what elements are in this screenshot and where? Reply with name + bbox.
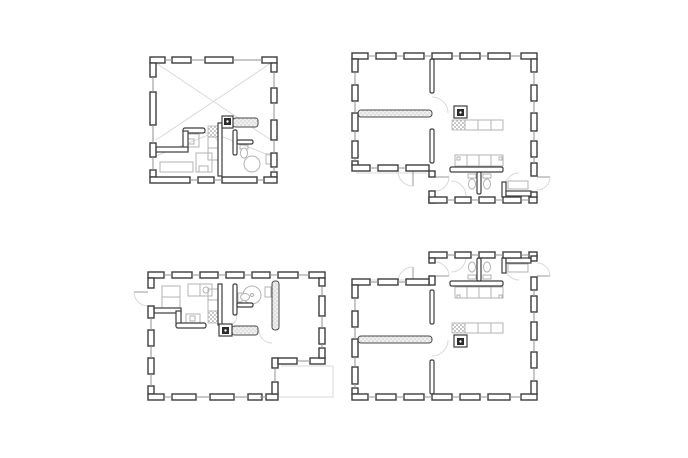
floor-plan-lower-right-fix [483,275,491,279]
floor-plan-lower-right-fix [465,323,478,333]
floor-plan-upper-right-wall [488,53,510,59]
floor-plan-lower-right-dot [459,340,461,342]
floor-plan-lower-left-wall [278,358,297,364]
floor-plan-upper-right-dot [459,111,461,113]
floor-plan-lower-left-faint [259,330,272,343]
floor-plan-upper-left-fixf [241,148,248,158]
floor-plan-lower-left-fix [188,284,200,296]
floor-plan-lower-right-wall [404,394,424,400]
floor-plan-lower-right-wall [352,279,370,285]
floor-plan-lower-left-wall [278,272,298,278]
floor-plan-upper-left-wall [271,120,277,140]
floor-plan-lower-right-wall [352,394,368,400]
floor-plan-upper-right-tex [358,110,432,117]
floor-plan-lower-right-wall [488,394,510,400]
floor-plan-upper-right-wall [352,165,370,171]
floor-plan-lower-left-wall [148,386,154,394]
floor-plan-upper-right-wall [529,197,537,203]
floor-plan-lower-right-fix [508,264,528,272]
floor-plan-lower-right-wall [432,394,452,400]
floor-plan-upper-right-wall [531,59,537,72]
floor-plan-upper-left-wall [271,153,277,167]
floor-plan-upper-right-wall [429,197,447,203]
floor-plan-lower-right-wall [479,252,495,258]
floor-plan-upper-left-wall [271,63,277,72]
floor-plan-lower-left-faint [134,292,148,306]
floor-plan-upper-right-faint [451,181,466,196]
floor-plan-lower-right-wall [455,252,471,258]
floor-plan-upper-right-wall [503,197,521,203]
floor-plan-upper-right-wall [352,85,358,101]
floor-plan-upper-right-fixf [484,179,491,189]
floor-plan-lower-left-wall [319,278,325,286]
floor-plan-lower-left-fix [186,314,200,323]
floor-plan-upper-right-fix [467,155,479,166]
floor-plan-upper-right-part [430,59,434,93]
floor-plan-upper-right-wall [531,113,537,131]
floor-plan-lower-left-tex [232,326,258,335]
floor-plan-lower-left-fix [200,284,212,296]
floor-plan-upper-left-wall [150,63,156,77]
floor-plan-upper-right-wall [531,163,537,176]
floor-plan-upper-right-part [502,182,506,197]
floor-plan-upper-right-faint [537,177,550,190]
floor-plan-upper-left-dot [226,120,228,122]
floor-plan-lower-right-part [430,290,434,324]
floor-plan-lower-left-fix [208,289,218,300]
floor-plan-upper-left-wall [150,177,190,183]
floor-plan-lower-right-wall [378,279,398,285]
floor-plan-lower-right-fixf [469,262,476,272]
floor-plan-lower-left-fix [251,294,254,297]
floor-plan-upper-right-wall [479,197,495,203]
floor-plan-lower-left-part [218,284,222,325]
floor-plan-lower-left-wall [148,394,164,400]
floor-plan-upper-left-wall [271,172,277,177]
floor-plan-lower-left-dot [224,329,226,331]
floor-plan-upper-right-wall [352,59,358,72]
floor-plan-upper-left-wall [150,92,156,125]
floor-plan-upper-right-check [452,120,465,130]
floor-plan-upper-left-wall [264,177,277,183]
floor-plan-lower-right-wall [352,367,358,384]
floor-plan-upper-right-wall [432,53,452,59]
floor-plan-lower-right-wall [352,388,358,394]
floor-plan-lower-right-fixf [484,262,491,272]
floor-plan-lower-right-wall [429,276,435,285]
floor-plan-lower-left-fix [162,297,180,308]
floor-plan-lower-left [134,272,333,400]
floor-plan-lower-right-part [450,281,503,286]
floor-plan-lower-right-fix [491,287,503,298]
floor-plan-lower-right-wall [503,252,521,258]
floor-plan-upper-right-faint [435,177,449,191]
floor-plan-lower-left-wall [319,328,325,344]
floor-plan-lower-right-wall [531,296,537,312]
floor-plan-upper-left-tex [233,118,258,127]
floor-plan-upper-left-wall [262,57,277,63]
floor-plan-lower-right-part [502,258,506,273]
floor-plan-upper-right-part [430,129,434,163]
floor-plan-upper-left-fix [208,148,218,160]
floor-plan-upper-right-part [506,191,531,196]
floor-plan-lower-right-fix [499,295,502,298]
floor-plan-lower-left-faint [278,366,333,397]
floor-plan-lower-left-fix [208,300,218,311]
floor-plan-upper-left-wall [205,57,233,63]
floor-plans-drawing [0,0,688,458]
floor-plan-lower-right-wall [352,311,358,327]
floor-plan-upper-left-wall [150,143,156,157]
floor-plan-upper-left-wall [222,177,257,183]
floor-plan-upper-left-part [183,131,188,149]
floor-plan-lower-left-part [237,303,253,307]
floor-plan-upper-left-wall [198,177,214,183]
floor-plan-lower-left-wall [148,330,154,346]
floor-plan-lower-right-wall [406,279,429,285]
floor-plan-upper-right-wall [378,165,398,171]
floor-plan-upper-left [150,57,277,183]
floor-plan-upper-right-wall [429,171,435,177]
floor-plan-upper-left-check [208,126,218,137]
floor-plan-lower-left-wall [200,272,218,278]
floor-plan-lower-right-part [506,258,531,263]
floor-plan-upper-right-faint [432,97,448,113]
floor-plan-upper-left-wall [150,170,156,177]
floor-plan-lower-right-part [430,360,434,394]
floor-plan-upper-left-part [152,147,188,152]
floor-plan-lower-right-fix [468,275,476,279]
floor-plan-upper-left-fix [199,166,208,172]
floor-plan-lower-right-faint [432,340,448,356]
floor-plan-lower-right-wall [429,252,447,258]
floor-plan-lower-left-fix [190,316,195,321]
floor-plan-lower-left-wall [172,394,196,400]
floor-plan-lower-right-wall [352,339,358,357]
floor-plan-upper-right-wall [406,165,429,171]
floor-plan-upper-right-part [450,167,503,172]
floor-plan-lower-right-faint [537,263,550,276]
floor-plan-lower-left-part [233,284,237,315]
floor-plan-lower-right-fix [457,295,460,298]
floor-plan-upper-right-wall [352,141,358,158]
floor-plan-lower-right [352,252,550,400]
floor-plan-upper-right-fix [483,174,491,178]
floor-plan-lower-left-fixf [241,294,250,301]
floor-plan-lower-left-wall [252,272,270,278]
floor-plan-upper-right-faint [505,173,519,187]
floor-plan-upper-right-wall [352,53,368,59]
floor-plan-lower-right-faint [435,262,449,276]
floor-plan-lower-right-fix [491,323,503,333]
floor-plan-lower-left-check [208,311,218,323]
floor-plan-lower-right-part [477,258,481,281]
floor-plan-upper-left-wall [172,57,191,63]
floor-plan-upper-right-wall [404,53,424,59]
floor-plan-upper-right-wall [531,85,537,101]
floor-plan-lower-left-wall [210,394,234,400]
floor-plan-lower-right-faint [451,257,466,272]
floor-plan-upper-right-fix [457,157,460,160]
floor-plan-lower-left-wall [226,272,244,278]
floor-plan-lower-left-wall [248,394,262,400]
floor-plan-sheet [0,0,688,458]
floor-plan-upper-right [352,53,550,203]
floor-plan-upper-right-wall [531,192,537,197]
floor-plan-lower-right-wall [531,352,537,368]
floor-plan-upper-left-part [237,140,253,144]
floor-plan-upper-right-wall [352,113,358,131]
floor-plan-upper-left-fix [244,156,260,172]
floor-plan-lower-left-wall [272,358,278,368]
floor-plan-lower-right-wall [352,285,358,298]
floor-plan-lower-left-wall [148,358,154,374]
floor-plan-lower-right-wall [531,381,537,394]
floor-plan-upper-right-fix [491,120,503,130]
floor-plan-lower-right-fix [478,323,491,333]
floor-plan-lower-left-wall [148,272,164,278]
floor-plan-lower-right-wall [521,394,537,400]
floor-plan-lower-left-wall [148,278,154,288]
floor-plan-lower-left-wall [310,358,325,364]
floor-plan-upper-right-fix [508,181,528,189]
floor-plan-lower-right-wall [460,394,480,400]
floor-plan-lower-left-fix [265,287,271,297]
floor-plan-lower-left-wall [172,272,192,278]
floor-plan-lower-left-wall [148,306,154,318]
floor-plan-upper-right-wall [455,197,471,203]
floor-plan-upper-right-wall [376,53,396,59]
floor-plan-upper-right-wall [521,53,537,59]
floor-plan-lower-right-wall [429,258,435,263]
floor-plan-lower-left-fix [162,286,180,297]
floor-plan-lower-right-fix [467,287,479,298]
floor-plan-lower-left-tex [272,281,279,330]
floor-plan-upper-right-part [477,172,481,194]
floor-plan-upper-left-fix [196,153,212,172]
floor-plan-upper-right-fix [465,120,478,130]
floor-plan-upper-right-fixf [469,179,476,189]
floor-plan-upper-right-fix [479,155,491,166]
floor-plan-lower-right-fix [479,287,491,298]
floor-plan-lower-left-wall [319,348,325,358]
floor-plan-upper-right-fix [478,120,491,130]
floor-plan-lower-right-tex [358,336,432,343]
floor-plan-lower-left-wall [272,382,278,394]
floor-plan-upper-left-wall [150,57,165,63]
floor-plan-lower-right-check [452,323,465,333]
floor-plan-upper-left-part [218,123,222,176]
floor-plan-upper-right-fix [499,157,502,160]
floor-plan-upper-left-wall [271,88,277,103]
floor-plan-lower-left-wall [266,394,278,400]
floor-plan-lower-right-wall [531,277,537,290]
floor-plan-upper-right-wall [531,141,537,157]
floor-plan-lower-left-wall [309,272,325,278]
floor-plan-upper-right-fix [468,174,476,178]
floor-plan-lower-left-part [176,323,206,328]
floor-plan-lower-left-wall [319,296,325,316]
floor-plan-lower-right-wall [531,256,537,261]
floor-plan-upper-left-fix [160,162,193,172]
floor-plan-lower-right-faint [505,266,519,280]
floor-plan-lower-right-wall [531,322,537,340]
floor-plan-lower-right-wall [376,394,396,400]
floor-plan-upper-right-wall [460,53,480,59]
